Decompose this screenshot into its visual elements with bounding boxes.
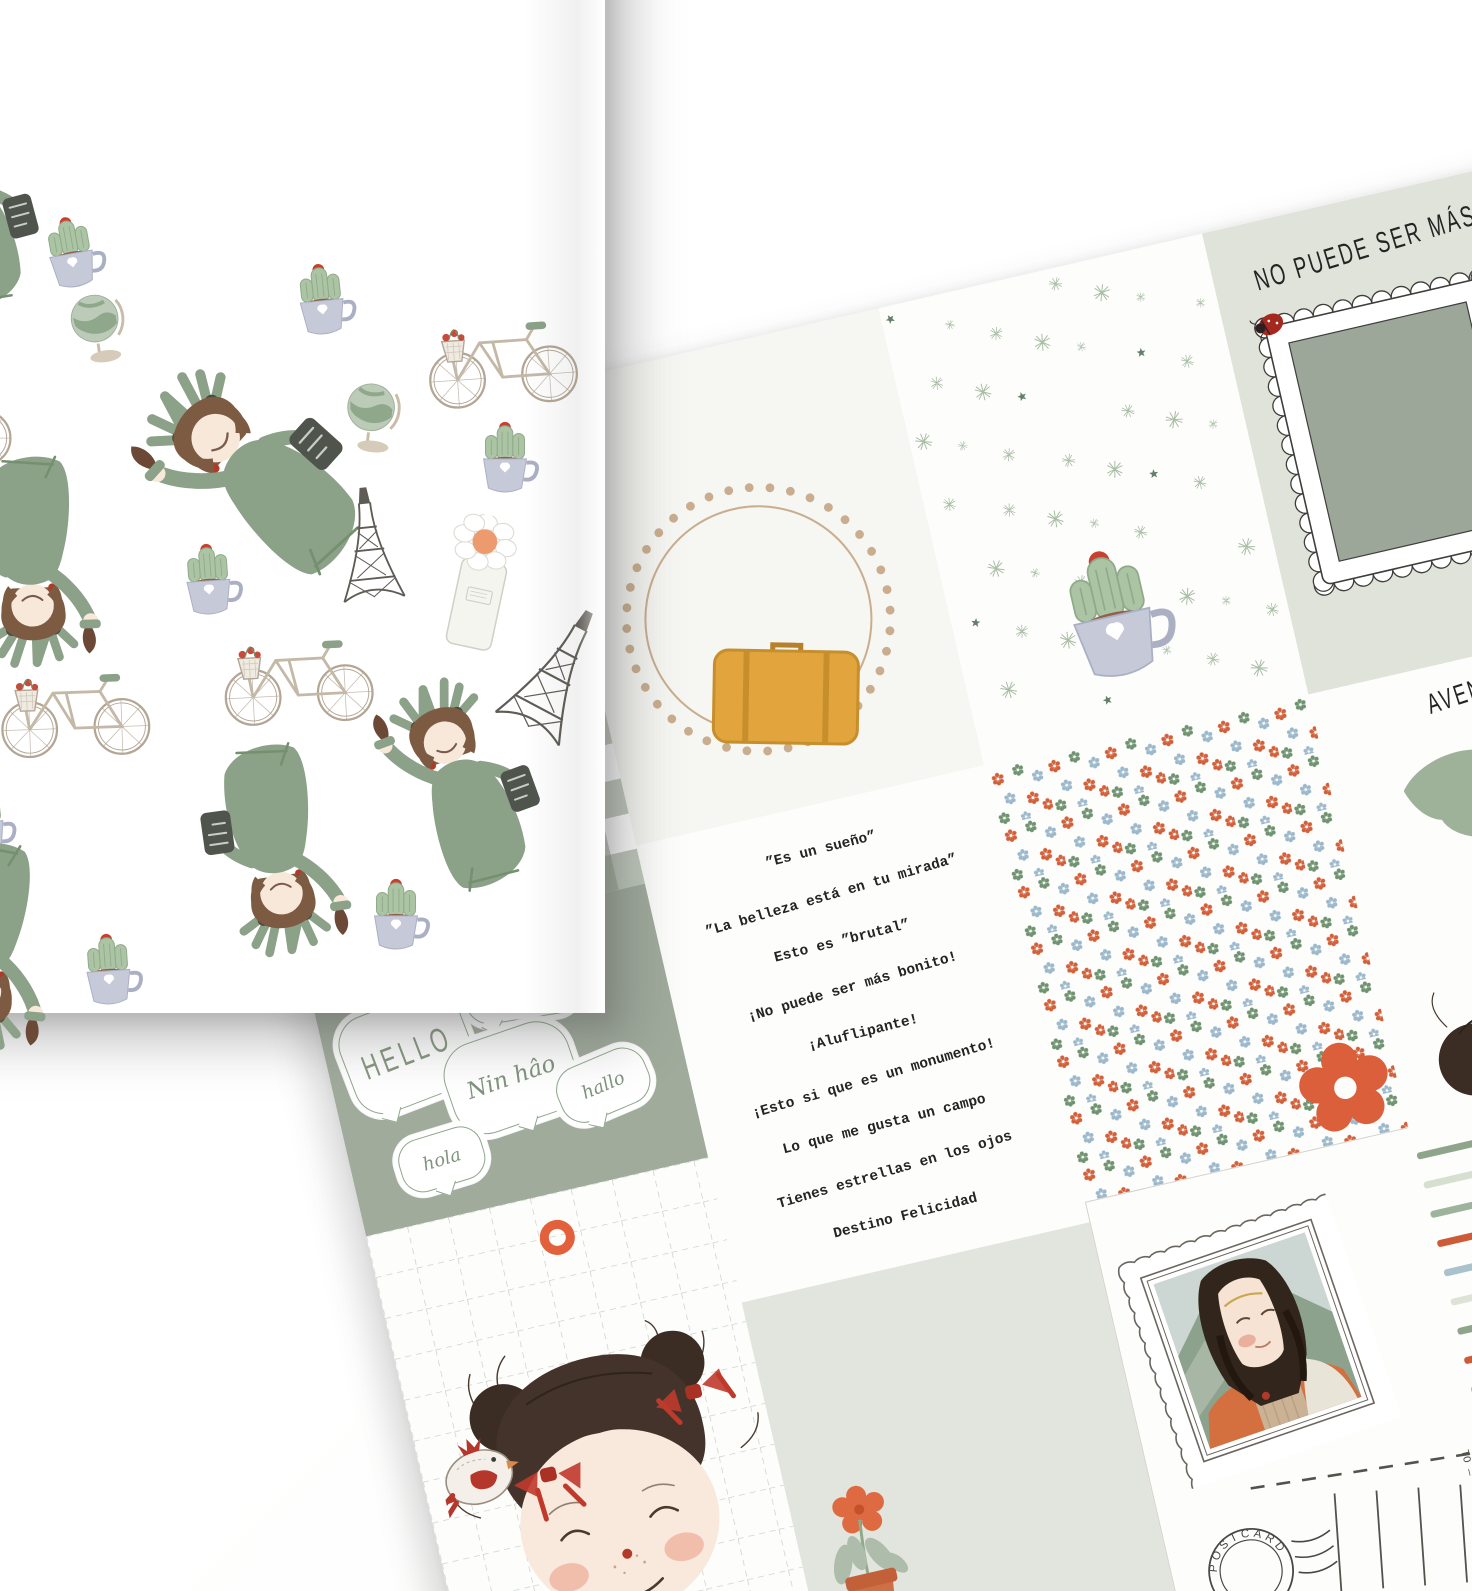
cactus-in-mug-motif	[466, 412, 544, 495]
journal-line	[1464, 1344, 1472, 1365]
postmark-text: POSTCARD	[1200, 1519, 1290, 1575]
daisy-perfume-bottle-motif	[415, 505, 538, 665]
suitcase-icon	[705, 638, 867, 751]
journal-line	[1430, 1185, 1472, 1218]
flower-pot-icon	[798, 1472, 931, 1591]
cactus-in-mug-motif	[357, 869, 435, 952]
journal-line	[1423, 1161, 1472, 1189]
bubble-label: hallo	[579, 1067, 628, 1104]
bubble-tail	[589, 1109, 608, 1128]
pattern-paper-sheet	[0, 0, 605, 1013]
quote-line: ”Es un sueño”	[764, 829, 878, 872]
postmark-icon: POSTCARD	[1200, 1509, 1344, 1591]
journal-line	[1457, 1305, 1472, 1335]
quote-line: ”La belleza está en tu mirada”	[704, 852, 959, 941]
bubble-label: hola	[420, 1144, 463, 1175]
statue-of-liberty-girl-motif	[174, 717, 380, 977]
bubble-label: Nin hâo	[463, 1050, 558, 1105]
bicycle-with-flower-basket-motif	[418, 292, 585, 416]
bubble-tail	[382, 1103, 401, 1122]
cactus-in-mug-motif	[278, 250, 364, 341]
scalloped-frame	[1248, 261, 1472, 602]
journal-line	[1437, 1212, 1472, 1247]
quote-line: Destino Felicidad	[831, 1191, 978, 1243]
svg-text:POSTCARD: POSTCARD	[1200, 1519, 1290, 1575]
cactus-in-mug-motif	[24, 200, 115, 295]
journal-line	[1450, 1273, 1472, 1306]
quote-line: Esto es ”brutal”	[772, 917, 911, 967]
cactus-in-mug-motif	[66, 921, 150, 1009]
bubble-tail	[436, 1176, 456, 1196]
globe-motif	[58, 282, 137, 374]
bubble-tail	[518, 1112, 538, 1132]
eiffel-tower-motif	[326, 481, 412, 622]
cactus-in-mug-motif	[166, 531, 250, 619]
postcard-to-label: TO —	[1458, 1449, 1472, 1478]
statue-of-liberty-girl-motif	[0, 437, 125, 681]
journal-line	[1443, 1240, 1472, 1277]
mockup-scene: HELLO KON'NICHIWA Nin hâo hola hallo	[0, 0, 1472, 1591]
speech-bubble-hola: hola	[393, 1121, 491, 1198]
bicycle-with-flower-basket-motif	[0, 646, 157, 765]
quote-line: ¡Aluflipante!	[806, 1012, 920, 1055]
